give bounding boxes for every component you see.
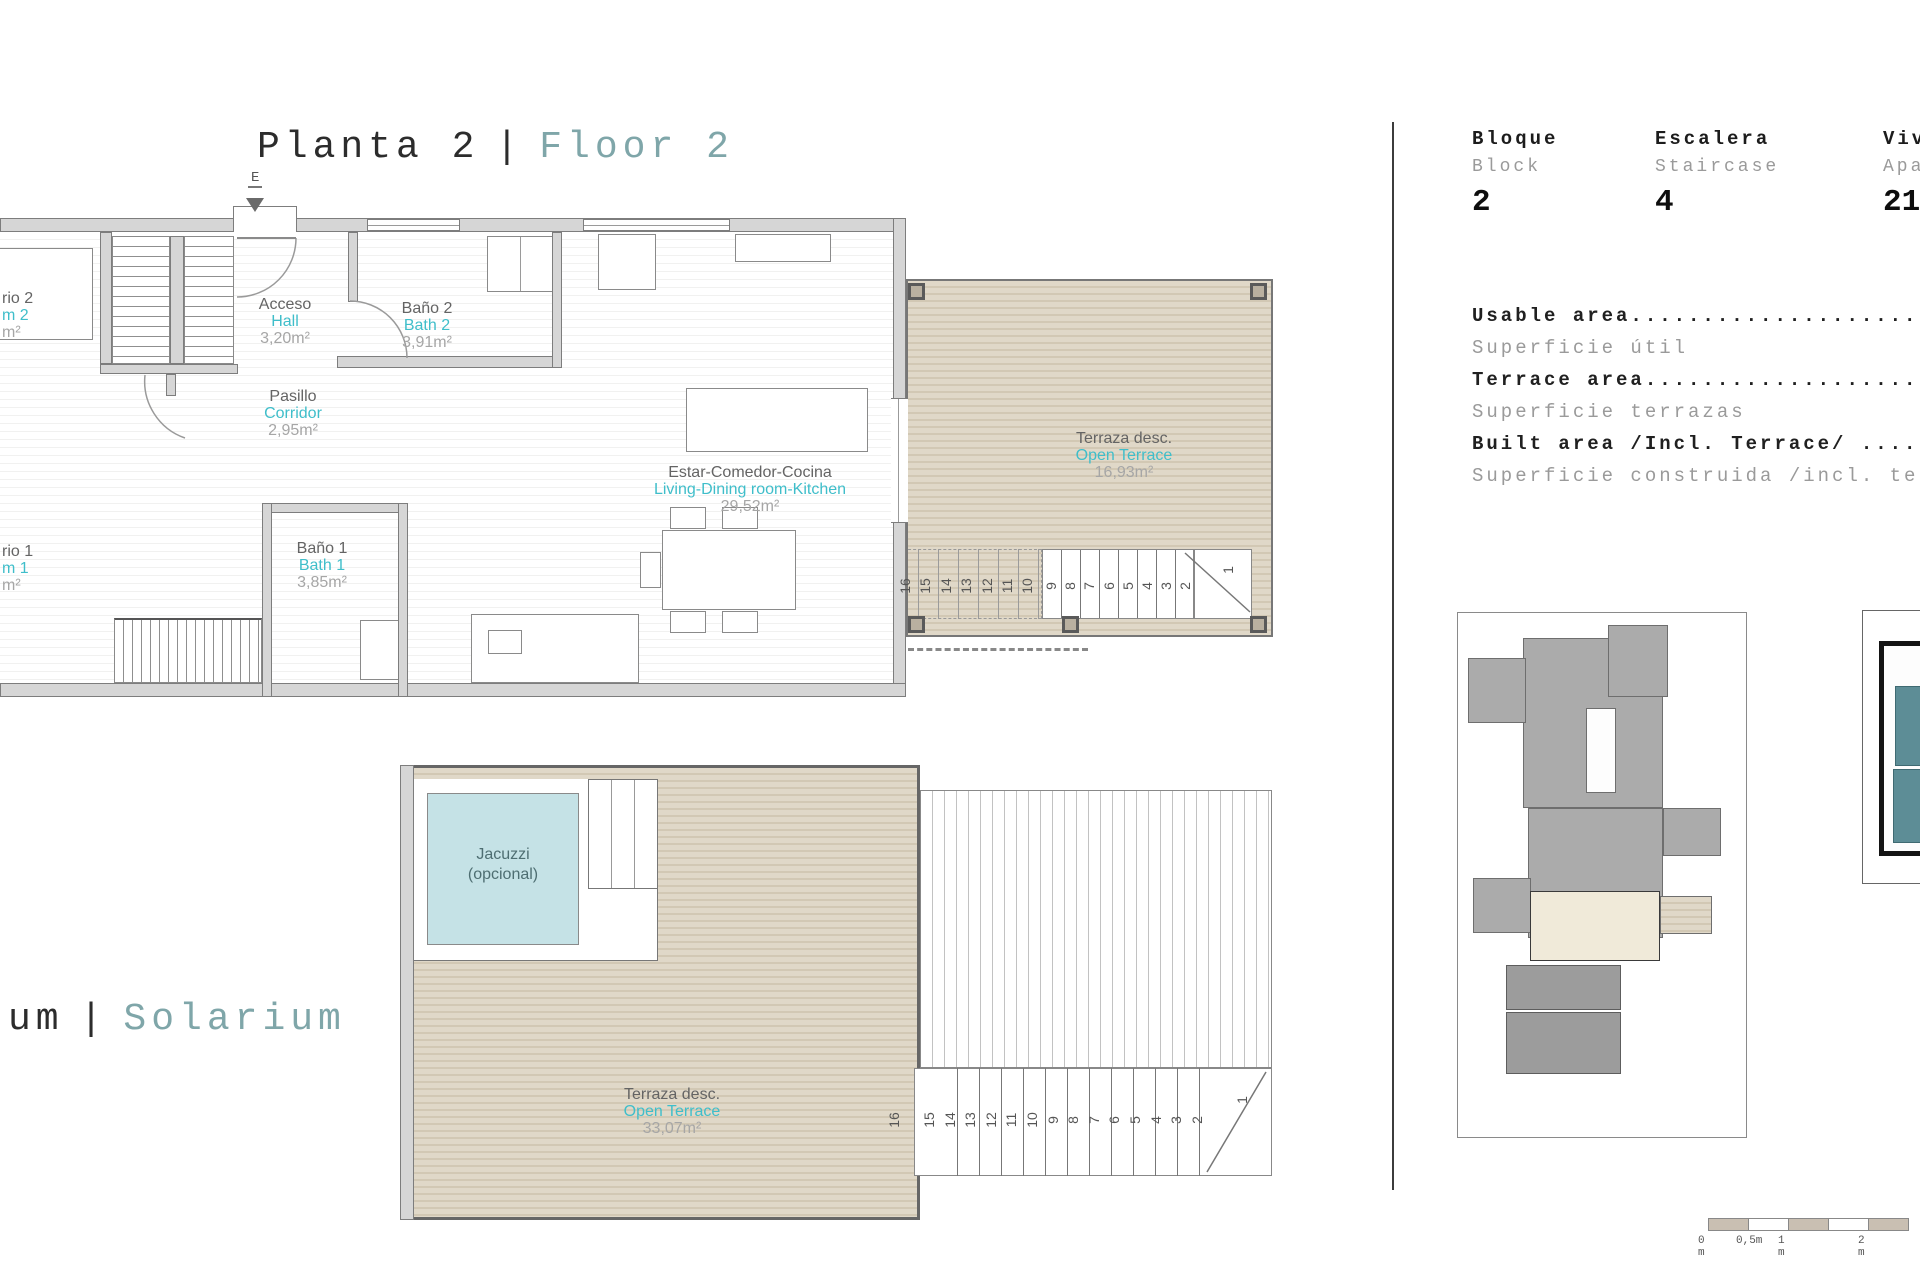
chair — [722, 611, 758, 633]
key-plan-solarium-box — [1506, 965, 1621, 1010]
wardrobe — [184, 236, 234, 364]
room-label-corridor: Pasillo Corridor 2,95m² — [264, 388, 322, 439]
key-plan — [1457, 612, 1747, 1138]
wardrobe — [112, 236, 170, 364]
window — [583, 219, 730, 231]
page-title-es: Planta 2 — [257, 126, 479, 169]
terrace-post — [1250, 616, 1267, 633]
key-plan-unit-terrace — [1660, 896, 1712, 934]
terrace-edge-dashes — [908, 648, 1088, 651]
wall — [398, 503, 408, 697]
shower-bath2 — [487, 236, 555, 292]
room-label-hall: Acceso Hall 3,20m² — [259, 296, 311, 347]
wall — [262, 503, 408, 513]
terrace-post — [1062, 616, 1079, 633]
page-title-separator: | — [495, 126, 523, 169]
pergola-slats — [920, 790, 1272, 1068]
chair — [640, 552, 661, 588]
terrace-area-label: Terrace area......................... — [1472, 369, 1920, 391]
room-label-terrace-top: Terraza desc. Open Terrace 16,93m² — [1076, 430, 1173, 481]
solarium-title-separator: | — [80, 998, 108, 1041]
sideboard — [735, 234, 831, 262]
page-title: Planta 2|Floor 2 — [257, 126, 734, 169]
stair-number: 2 — [1179, 1112, 1215, 1128]
panel-divider — [1392, 122, 1394, 1190]
site-plan-building — [1895, 686, 1920, 766]
room-label-bedroom1: rio 1 m 1 m² — [2, 543, 33, 594]
scale-segment — [1868, 1218, 1909, 1231]
info-staircase: Escalera Staircase 4 — [1655, 128, 1779, 220]
terrace-area-label-es: Superficie terrazas — [1472, 401, 1746, 423]
solarium-title-en: Solarium — [123, 998, 345, 1041]
kitchen-sink — [488, 630, 522, 654]
entrance-marker: E — [248, 170, 262, 188]
scale-segment — [1788, 1218, 1829, 1231]
window — [367, 219, 460, 231]
cabinet — [598, 234, 656, 290]
room-label-bath1: Baño 1 Bath 1 3,85m² — [297, 540, 348, 591]
scale-segment — [1828, 1218, 1869, 1231]
room-label-bedroom2: rio 2 m 2 m² — [2, 290, 33, 341]
wall — [552, 232, 562, 368]
bed-bedroom1 — [114, 618, 262, 683]
wall — [0, 683, 906, 697]
entry-notch — [233, 206, 297, 232]
floorplan-page: Planta 2|Floor 2 E um|Solarium — [0, 0, 1920, 1280]
stair-number: 1 — [1224, 1092, 1260, 1108]
usable-area-label: Usable area.......................... — [1472, 305, 1920, 327]
wall — [337, 356, 562, 368]
site-plan-building — [1893, 769, 1920, 843]
stair-number: 16 — [876, 1112, 912, 1128]
key-plan-wing — [1663, 808, 1721, 856]
terrace-post — [1250, 283, 1267, 300]
chair — [670, 611, 706, 633]
dining-table — [662, 530, 796, 610]
room-label-bath2: Baño 2 Bath 2 3,91m² — [402, 300, 453, 351]
room-label-terrace-solarium: Terraza desc. Open Terrace 33,07m² — [624, 1086, 721, 1137]
solarium-title: um|Solarium — [8, 998, 346, 1041]
key-plan-core — [1586, 708, 1616, 793]
wall — [100, 232, 112, 364]
jacuzzi-steps — [588, 779, 658, 889]
room-label-living: Estar-Comedor-Cocina Living-Dining room-… — [654, 464, 846, 515]
solarium-title-es: um — [8, 998, 64, 1041]
page-title-en: Floor 2 — [539, 126, 734, 169]
wall — [170, 236, 184, 364]
scale-segment — [1708, 1218, 1749, 1231]
built-area-label: Built area /Incl. Terrace/ .......... — [1472, 433, 1920, 455]
info-block: Bloque Block 2 — [1472, 128, 1558, 220]
key-plan-wing — [1473, 878, 1531, 933]
terrace-post — [908, 616, 925, 633]
key-plan-wing — [1608, 625, 1668, 697]
wall — [100, 364, 238, 374]
site-plan — [1862, 610, 1920, 884]
wall — [348, 232, 358, 302]
key-plan-wing — [1468, 658, 1526, 723]
usable-area-label-es: Superficie útil — [1472, 337, 1688, 359]
sofa — [686, 388, 868, 452]
stair-number: 2 — [1167, 578, 1203, 594]
key-plan-solarium-box — [1506, 1012, 1621, 1074]
built-area-label-es: Superficie construida /incl. te — [1472, 465, 1918, 487]
wall — [262, 503, 272, 697]
stair-number: 1 — [1210, 562, 1246, 578]
wall — [166, 374, 176, 396]
key-plan-highlighted-unit — [1530, 891, 1660, 961]
wall — [400, 765, 414, 1220]
info-apartment: Viv Apa 21 — [1883, 128, 1920, 220]
scale-segment — [1748, 1218, 1789, 1231]
terrace-post — [908, 283, 925, 300]
terrace-sliding-door — [891, 398, 908, 523]
jacuzzi-label: Jacuzzi (opcional) — [428, 845, 578, 885]
